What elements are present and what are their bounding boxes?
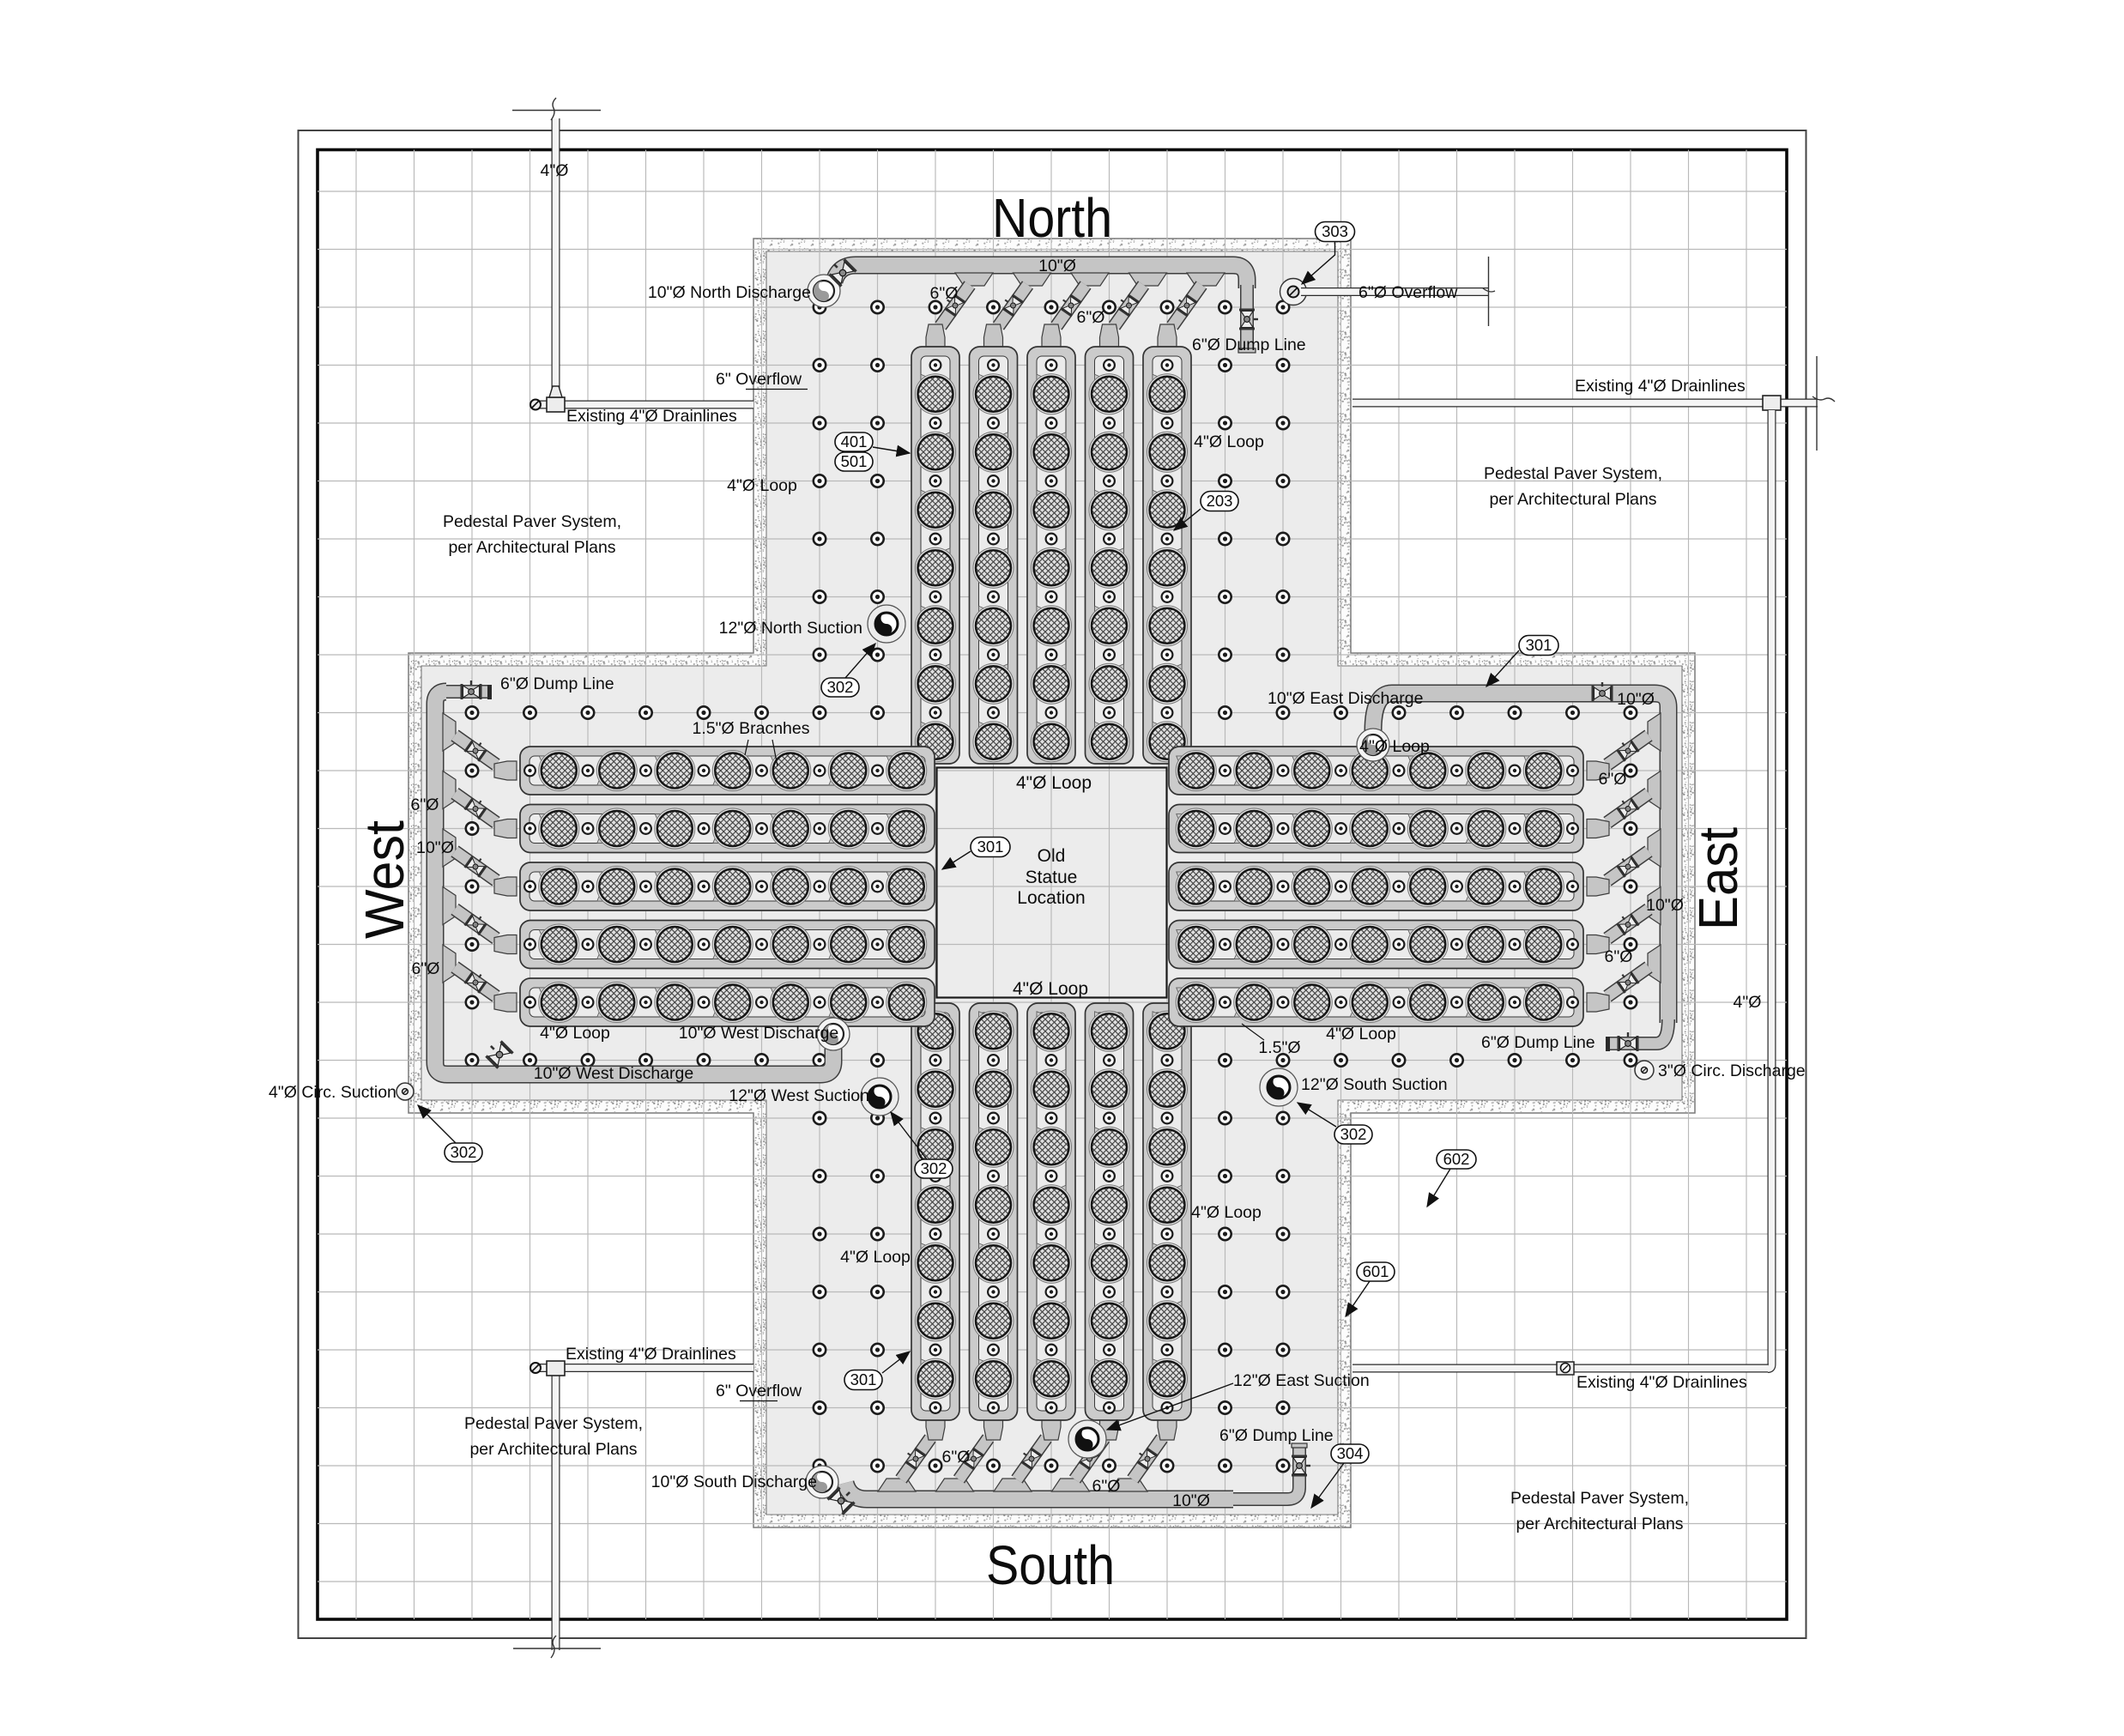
svg-text:10"Ø North Discharge: 10"Ø North Discharge	[648, 283, 811, 302]
svg-text:Existing 4"Ø Drainlines: Existing 4"Ø Drainlines	[1576, 1373, 1747, 1392]
svg-text:10"Ø East Discharge: 10"Ø East Discharge	[1268, 689, 1423, 708]
svg-text:6" Overflow: 6" Overflow	[716, 1382, 802, 1400]
svg-text:10"Ø: 10"Ø	[1617, 690, 1655, 709]
svg-text:per Architectural Plans: per Architectural Plans	[1489, 490, 1656, 509]
svg-text:4"Ø: 4"Ø	[541, 161, 569, 180]
svg-text:4"Ø Loop: 4"Ø Loop	[727, 476, 797, 495]
svg-text:12"Ø East Suction: 12"Ø East Suction	[1233, 1371, 1370, 1390]
svg-text:6"Ø Dump Line: 6"Ø Dump Line	[500, 674, 614, 693]
svg-text:4"Ø Circ. Suction: 4"Ø Circ. Suction	[269, 1083, 396, 1102]
svg-text:4"Ø Loop: 4"Ø Loop	[1191, 1203, 1262, 1222]
svg-text:301: 301	[1526, 636, 1552, 654]
svg-text:3"Ø Circ. Discharge: 3"Ø Circ. Discharge	[1658, 1062, 1806, 1080]
svg-text:6"Ø: 6"Ø	[1077, 308, 1105, 327]
svg-text:4"Ø Loop: 4"Ø Loop	[1359, 737, 1430, 756]
svg-text:6"Ø: 6"Ø	[411, 795, 439, 814]
svg-text:4"Ø: 4"Ø	[1734, 993, 1762, 1012]
svg-text:302: 302	[451, 1143, 477, 1161]
svg-text:12"Ø West Suction: 12"Ø West Suction	[729, 1086, 869, 1105]
svg-text:6"Ø: 6"Ø	[942, 1448, 971, 1467]
svg-text:Pedestal Paver System,: Pedestal Paver System,	[1510, 1489, 1689, 1508]
svg-text:601: 601	[1363, 1262, 1389, 1280]
svg-text:6"Ø Dump Line: 6"Ø Dump Line	[1481, 1033, 1595, 1052]
svg-text:per Architectural Plans: per Architectural Plans	[469, 1440, 637, 1459]
svg-text:6"Ø: 6"Ø	[1599, 770, 1627, 789]
svg-text:North: North	[992, 187, 1112, 249]
svg-text:6"Ø: 6"Ø	[412, 959, 440, 978]
svg-text:4"Ø Loop: 4"Ø Loop	[540, 1024, 610, 1043]
svg-text:Old: Old	[1038, 846, 1066, 866]
svg-text:10"Ø: 10"Ø	[1038, 257, 1076, 275]
svg-text:6"Ø: 6"Ø	[1605, 947, 1633, 966]
svg-text:401: 401	[841, 432, 868, 451]
svg-text:West: West	[354, 820, 415, 939]
svg-text:12"Ø North Suction: 12"Ø North Suction	[719, 619, 862, 638]
svg-text:Existing 4"Ø Drainlines: Existing 4"Ø Drainlines	[566, 1345, 736, 1364]
svg-text:10"Ø: 10"Ø	[1172, 1491, 1210, 1510]
svg-text:Pedestal Paver System,: Pedestal Paver System,	[443, 512, 621, 531]
svg-text:4"Ø Loop: 4"Ø Loop	[1016, 773, 1092, 793]
svg-text:6"Ø Dump Line: 6"Ø Dump Line	[1192, 336, 1306, 354]
svg-text:10"Ø West Discharge: 10"Ø West Discharge	[679, 1024, 838, 1043]
svg-text:501: 501	[841, 452, 868, 470]
svg-text:302: 302	[921, 1159, 947, 1177]
svg-text:4"Ø Loop: 4"Ø Loop	[1013, 979, 1088, 999]
svg-text:1.5"Ø Bracnhes: 1.5"Ø Bracnhes	[693, 719, 810, 738]
svg-text:6"Ø: 6"Ø	[930, 284, 959, 303]
svg-text:301: 301	[850, 1370, 877, 1388]
svg-text:4"Ø Loop: 4"Ø Loop	[1194, 432, 1264, 451]
svg-text:10"Ø West Discharge: 10"Ø West Discharge	[534, 1064, 693, 1083]
svg-text:Location: Location	[1017, 888, 1085, 908]
svg-text:6"Ø Dump Line: 6"Ø Dump Line	[1219, 1426, 1334, 1445]
svg-text:South: South	[986, 1534, 1115, 1596]
svg-text:6" Overflow: 6" Overflow	[716, 370, 802, 389]
svg-text:10"Ø South Discharge: 10"Ø South Discharge	[651, 1473, 817, 1491]
svg-text:East: East	[1687, 827, 1749, 930]
svg-text:10"Ø: 10"Ø	[1646, 896, 1684, 915]
svg-text:Existing 4"Ø Drainlines: Existing 4"Ø Drainlines	[1575, 377, 1746, 396]
svg-text:Pedestal Paver System,: Pedestal Paver System,	[1484, 464, 1662, 483]
svg-text:1.5"Ø: 1.5"Ø	[1258, 1038, 1300, 1057]
svg-text:6"Ø: 6"Ø	[1092, 1477, 1121, 1496]
svg-text:4"Ø Loop: 4"Ø Loop	[840, 1248, 911, 1267]
svg-text:303: 303	[1322, 222, 1348, 240]
svg-text:10"Ø: 10"Ø	[416, 838, 454, 857]
svg-text:4"Ø Loop: 4"Ø Loop	[1326, 1025, 1396, 1043]
svg-text:301: 301	[977, 838, 1004, 856]
svg-text:304: 304	[1337, 1444, 1364, 1462]
svg-text:302: 302	[1340, 1125, 1367, 1143]
svg-text:302: 302	[827, 678, 854, 696]
svg-text:per Architectural Plans: per Architectural Plans	[1516, 1515, 1683, 1533]
svg-text:602: 602	[1443, 1150, 1470, 1168]
svg-text:Pedestal Paver System,: Pedestal Paver System,	[464, 1414, 643, 1433]
svg-text:203: 203	[1207, 492, 1233, 510]
svg-text:Statue: Statue	[1026, 868, 1078, 887]
svg-text:per Architectural Plans: per Architectural Plans	[448, 538, 615, 557]
svg-text:Existing 4"Ø Drainlines: Existing 4"Ø Drainlines	[566, 407, 737, 426]
svg-text:6"Ø Overflow: 6"Ø Overflow	[1359, 283, 1458, 302]
svg-text:12"Ø South Suction: 12"Ø South Suction	[1301, 1075, 1448, 1094]
